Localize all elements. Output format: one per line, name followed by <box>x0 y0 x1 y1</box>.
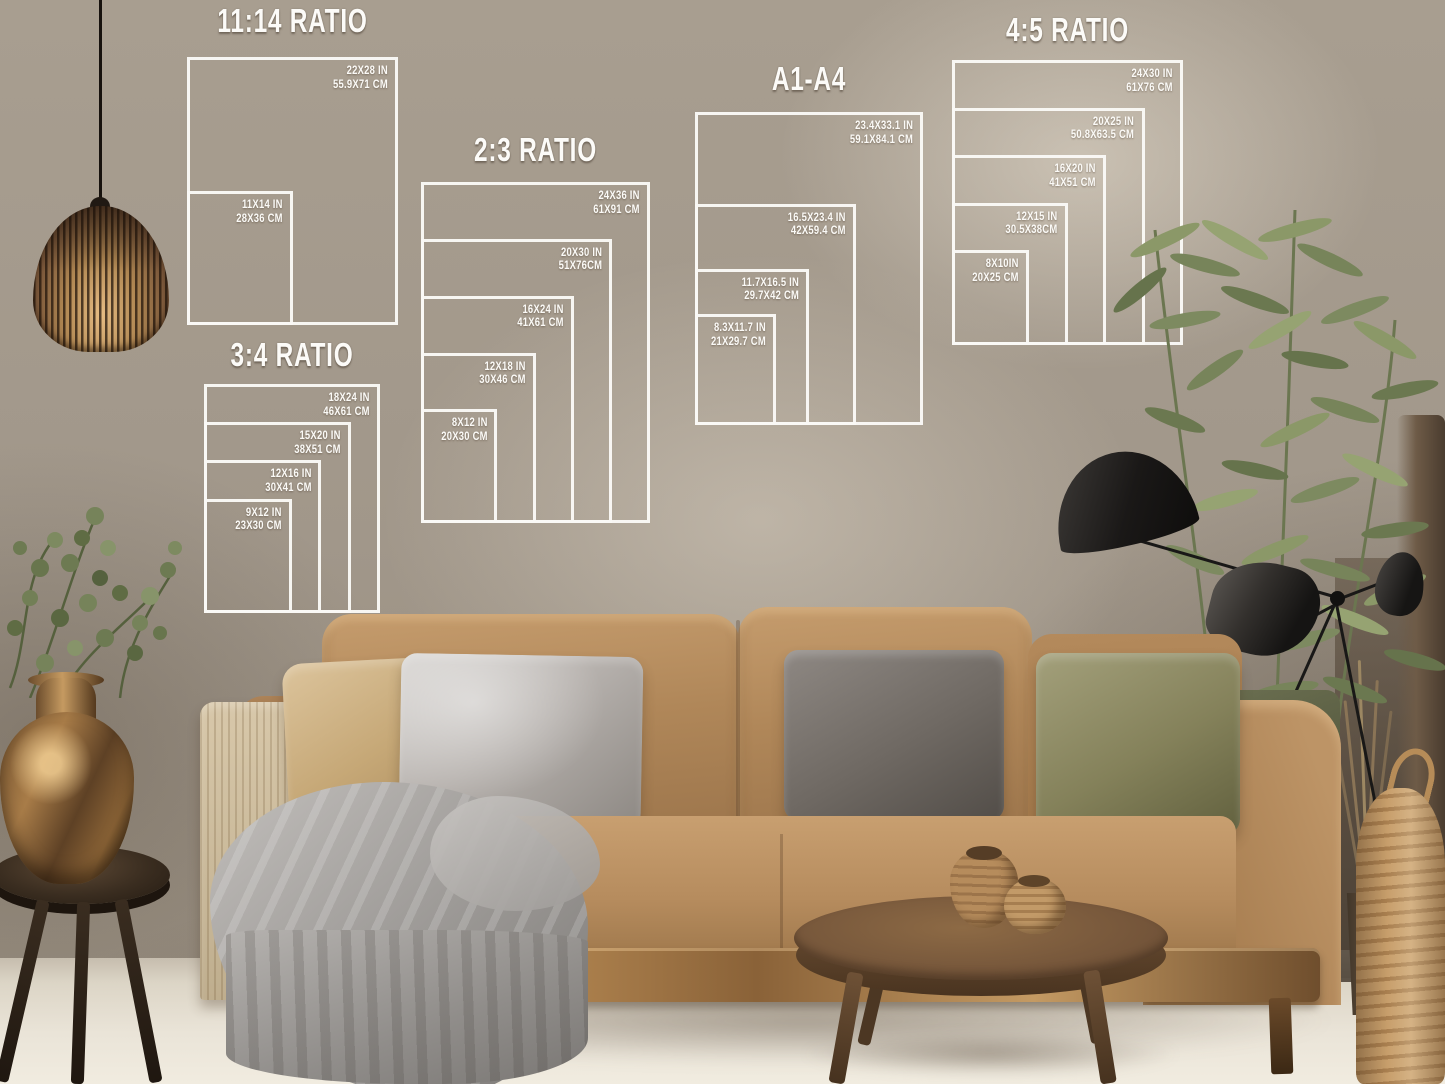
vase-opening <box>966 846 1002 860</box>
coffee-table <box>0 0 1445 1084</box>
vase-opening <box>1018 875 1050 887</box>
table-floor-shadow <box>798 1032 1182 1076</box>
living-room-size-guide-scene: 11:14 RATIO 22X28 IN55.9X71 CM11X14 IN28… <box>0 0 1445 1084</box>
